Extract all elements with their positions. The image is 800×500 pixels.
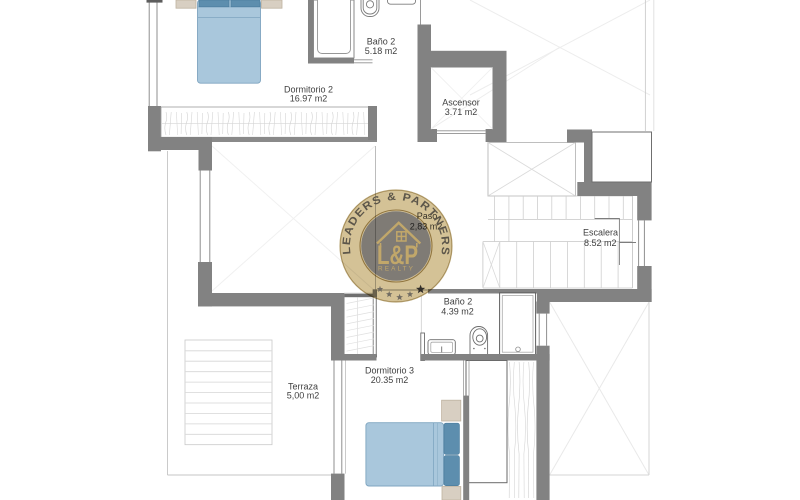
svg-text:4.39 m2: 4.39 m2 — [441, 307, 474, 317]
svg-text:Ascensor: Ascensor — [442, 98, 480, 108]
svg-text:5.18 m2: 5.18 m2 — [365, 46, 398, 56]
svg-text:3.71 m2: 3.71 m2 — [445, 107, 478, 117]
svg-text:16.97 m2: 16.97 m2 — [290, 94, 328, 104]
svg-text:REALTY: REALTY — [378, 266, 415, 273]
svg-text:20.35 m2: 20.35 m2 — [371, 375, 409, 385]
svg-text:Escalera: Escalera — [583, 228, 618, 238]
svg-text:8.52 m2: 8.52 m2 — [584, 238, 617, 248]
svg-text:Baño 2: Baño 2 — [367, 37, 396, 47]
svg-text:5,00 m2: 5,00 m2 — [287, 391, 320, 401]
svg-text:Dormitorio 3: Dormitorio 3 — [365, 366, 414, 376]
svg-text:Baño 2: Baño 2 — [444, 297, 473, 307]
